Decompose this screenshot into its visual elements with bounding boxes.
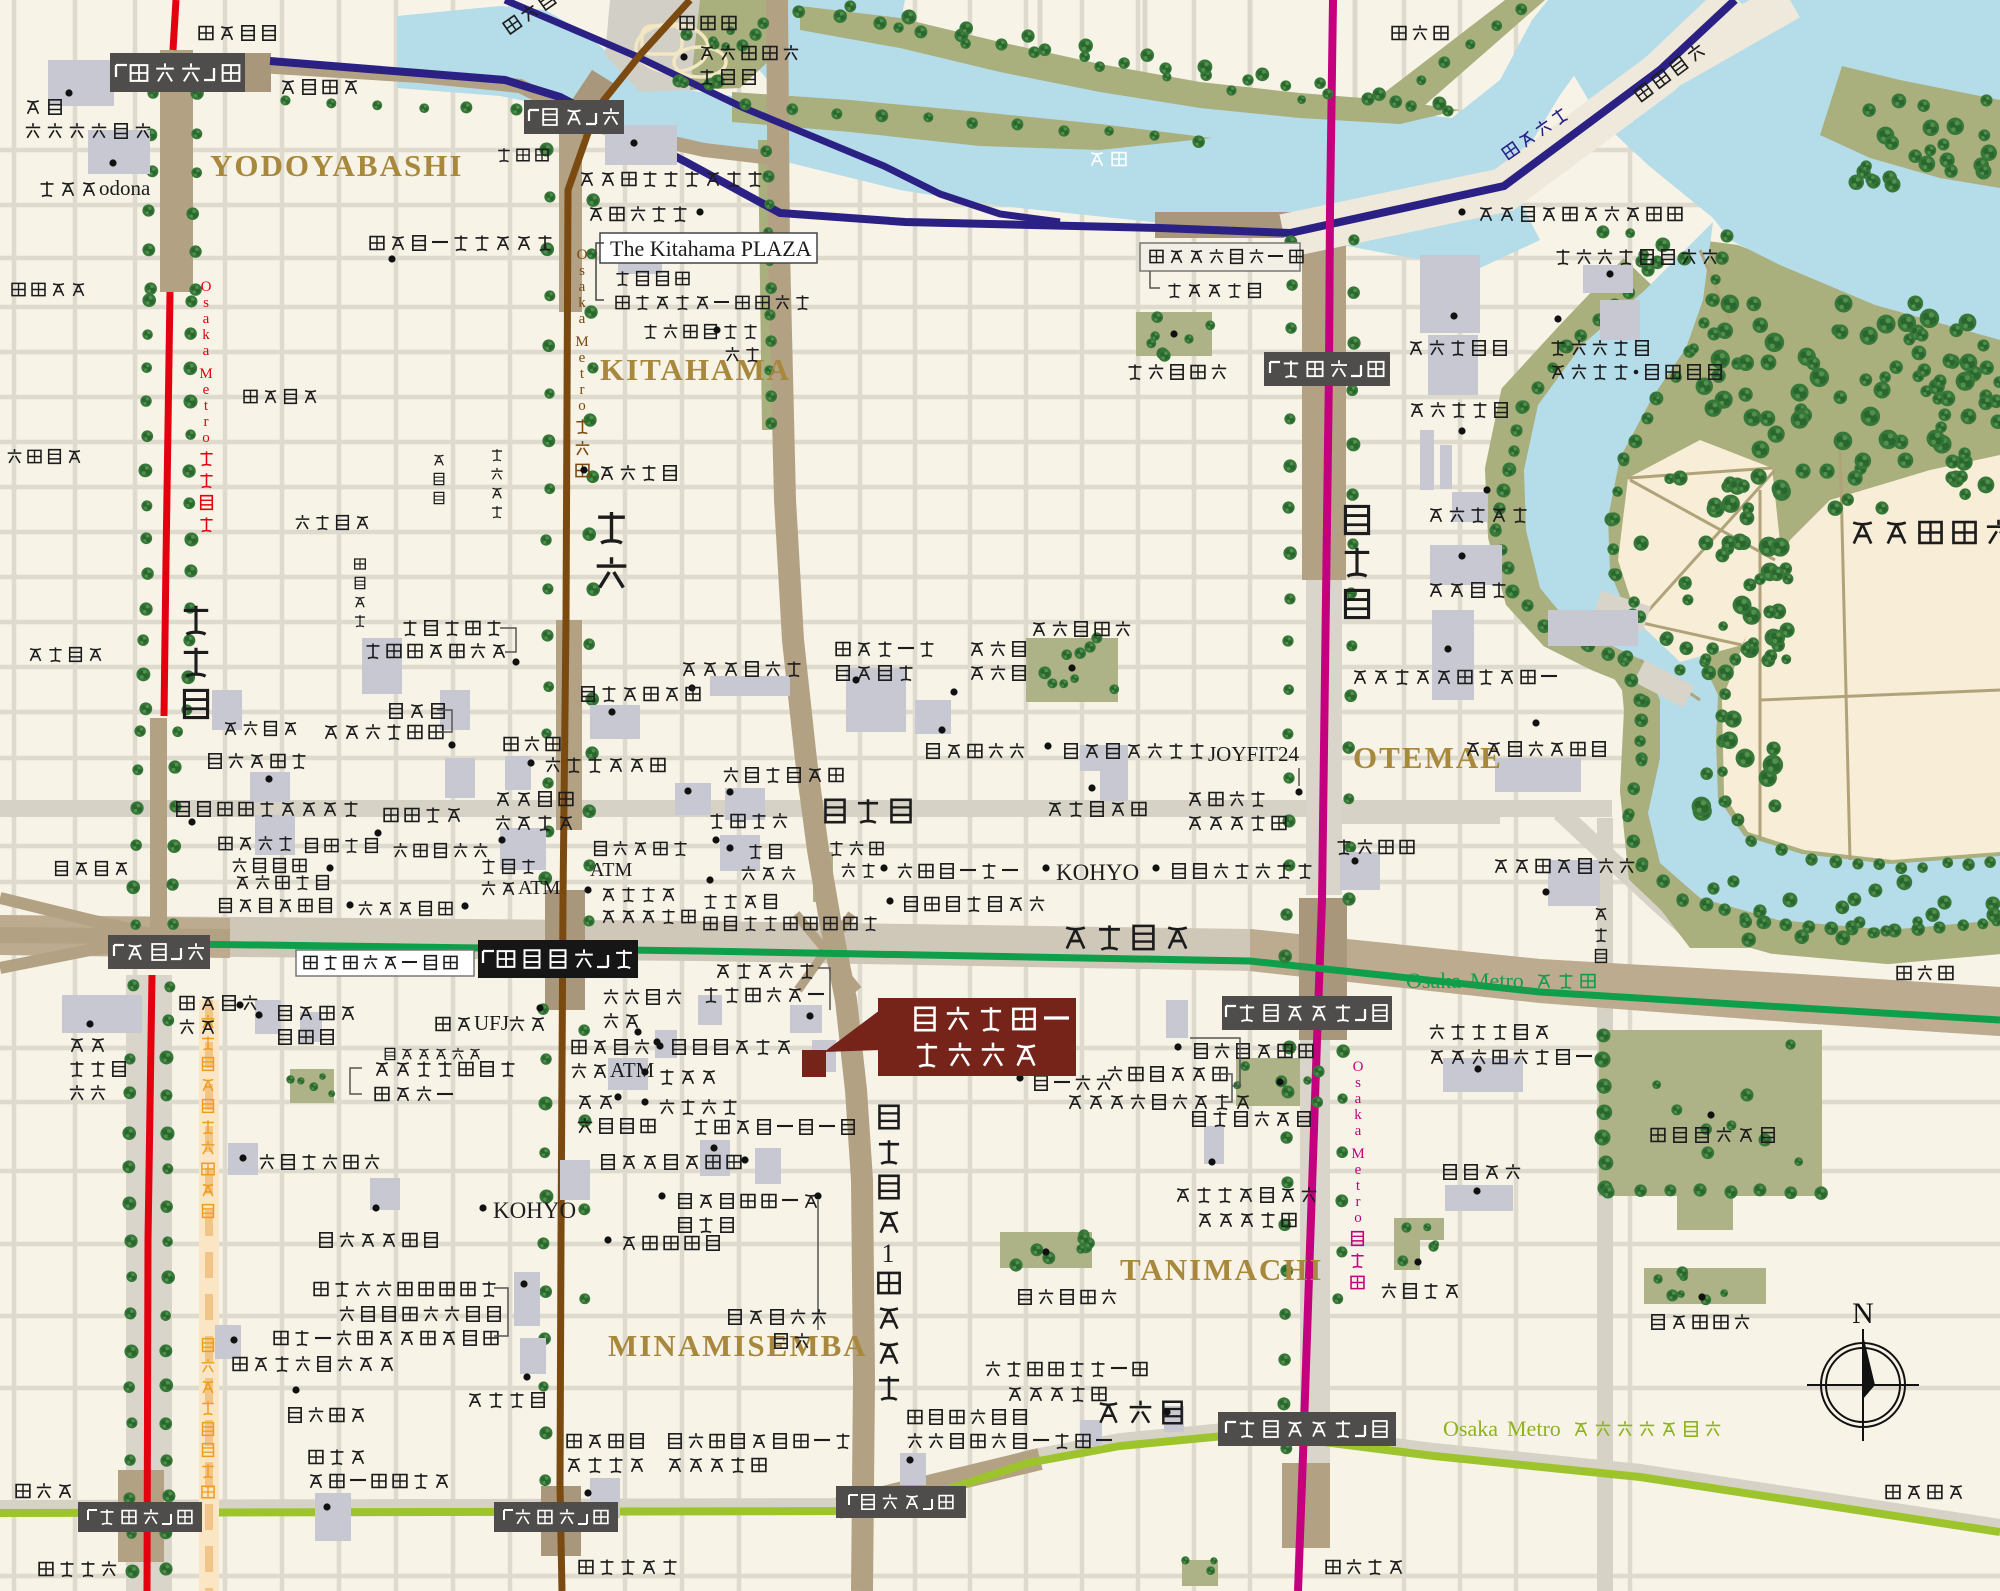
svg-text:k: k xyxy=(578,295,586,311)
svg-text:M: M xyxy=(199,366,212,382)
svg-text:s: s xyxy=(1355,1075,1361,1091)
svg-text:O: O xyxy=(1353,1059,1364,1075)
svg-text:Osaka: Osaka xyxy=(1443,1416,1498,1441)
svg-text:Metro: Metro xyxy=(1507,1416,1561,1441)
svg-text:N: N xyxy=(1852,1297,1874,1330)
svg-text:1: 1 xyxy=(882,1239,895,1268)
svg-text:e: e xyxy=(1355,1162,1362,1178)
svg-text:KOHYO: KOHYO xyxy=(493,1198,576,1223)
svg-text:O: O xyxy=(577,247,588,263)
svg-text:o: o xyxy=(202,430,210,446)
svg-text:a: a xyxy=(1355,1123,1362,1139)
svg-text:The Kitahama PLAZA: The Kitahama PLAZA xyxy=(610,236,812,261)
svg-text:o: o xyxy=(578,398,586,414)
svg-text:k: k xyxy=(202,327,210,343)
svg-text:OTEMAE: OTEMAE xyxy=(1353,740,1503,775)
svg-text:UFJ: UFJ xyxy=(474,1011,509,1035)
svg-text:a: a xyxy=(1355,1091,1362,1107)
svg-text:s: s xyxy=(579,263,585,279)
svg-text:a: a xyxy=(579,279,586,295)
svg-text:r: r xyxy=(580,382,585,398)
svg-text:YODOYABASHI: YODOYABASHI xyxy=(210,148,463,183)
svg-text:M: M xyxy=(1351,1146,1364,1162)
svg-text:k: k xyxy=(1354,1107,1362,1123)
svg-text:s: s xyxy=(203,295,209,311)
svg-text:odona: odona xyxy=(99,176,151,200)
svg-text:ATM: ATM xyxy=(590,859,632,881)
svg-text:r: r xyxy=(204,414,209,430)
svg-text:e: e xyxy=(579,350,586,366)
svg-text:TANIMACHI: TANIMACHI xyxy=(1120,1252,1323,1287)
svg-text:M: M xyxy=(575,334,588,350)
svg-text:O: O xyxy=(201,279,212,295)
svg-text:Metro: Metro xyxy=(1470,968,1524,993)
svg-text:JOYFIT24: JOYFIT24 xyxy=(1208,742,1300,766)
svg-text:r: r xyxy=(1356,1194,1361,1210)
svg-text:ATM: ATM xyxy=(518,877,560,899)
svg-text:KOHYO: KOHYO xyxy=(1056,860,1139,885)
svg-text:a: a xyxy=(203,343,210,359)
svg-text:a: a xyxy=(203,311,210,327)
svg-text:a: a xyxy=(579,311,586,327)
svg-text:MINAMISEMBA: MINAMISEMBA xyxy=(608,1328,868,1363)
svg-text:e: e xyxy=(203,382,210,398)
svg-text:o: o xyxy=(1354,1210,1362,1226)
svg-text:Osaka: Osaka xyxy=(1406,968,1461,993)
svg-text:KITAHAMA: KITAHAMA xyxy=(600,352,791,387)
